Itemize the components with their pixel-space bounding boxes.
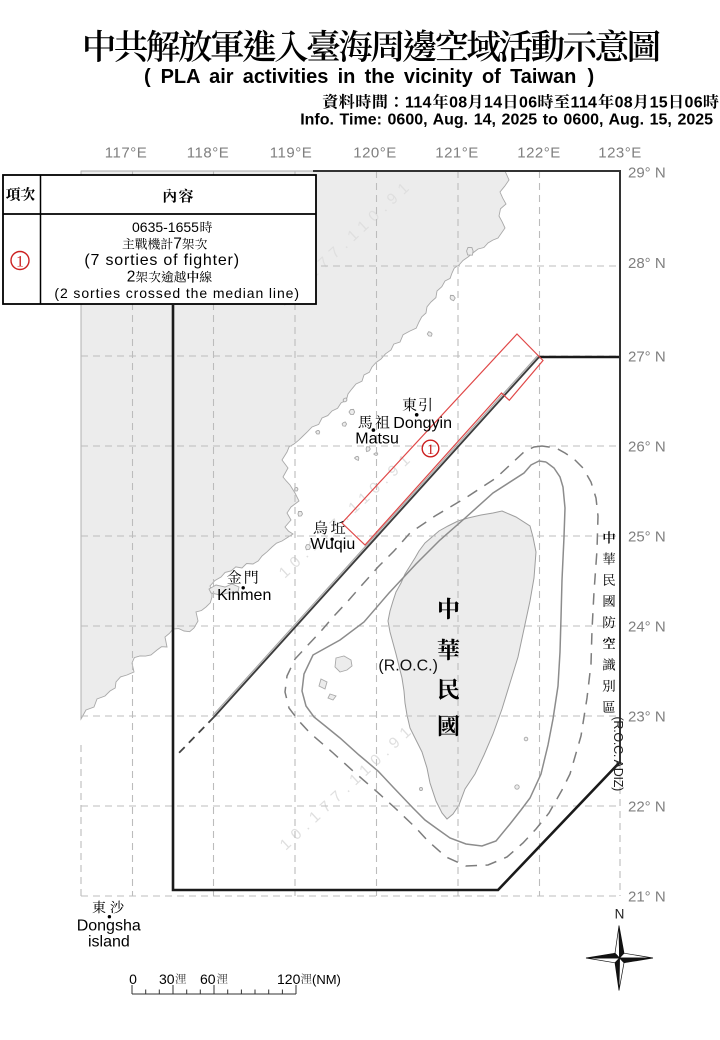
svg-text:123°E: 123°E bbox=[598, 145, 642, 162]
svg-text:120°E: 120°E bbox=[353, 145, 397, 162]
svg-text:23° N: 23° N bbox=[628, 708, 666, 725]
svg-text:PLA air activities in the vici: PLA air activities in the vicinity of Ta… bbox=[161, 66, 577, 88]
svg-text:(2 sorties crossed the median: (2 sorties crossed the median line) bbox=[54, 285, 300, 301]
svg-text:26° N: 26° N bbox=[628, 438, 666, 455]
svg-text:119°E: 119°E bbox=[270, 145, 312, 162]
svg-text:24° N: 24° N bbox=[628, 618, 666, 635]
svg-text:0635-1655: 0635-1655 bbox=[132, 219, 199, 235]
svg-text:7: 7 bbox=[173, 236, 182, 253]
svg-text:121°E: 121°E bbox=[435, 145, 479, 162]
svg-text:1: 1 bbox=[427, 442, 435, 458]
svg-text:28° N: 28° N bbox=[628, 255, 666, 272]
svg-text:27° N: 27° N bbox=[628, 348, 666, 365]
svg-text:1: 1 bbox=[16, 253, 24, 270]
svg-text:Dongsha: Dongsha bbox=[77, 918, 141, 935]
svg-text:30: 30 bbox=[159, 971, 175, 987]
svg-text:2: 2 bbox=[127, 269, 136, 286]
svg-text:08: 08 bbox=[615, 94, 633, 111]
svg-text:29° N: 29° N bbox=[628, 164, 666, 181]
svg-text:06: 06 bbox=[685, 94, 703, 111]
svg-text:21° N: 21° N bbox=[628, 888, 666, 905]
svg-text:(R.O.C.): (R.O.C.) bbox=[378, 658, 438, 675]
svg-text:122°E: 122°E bbox=[517, 145, 561, 162]
svg-text:114: 114 bbox=[405, 94, 432, 111]
svg-text:15: 15 bbox=[650, 94, 668, 111]
svg-text:22° N: 22° N bbox=[628, 798, 666, 815]
svg-text:14: 14 bbox=[484, 94, 502, 111]
svg-text:25° N: 25° N bbox=[628, 528, 666, 545]
svg-text:(7 sorties of fighter): (7 sorties of fighter) bbox=[84, 252, 239, 269]
svg-text:Matsu: Matsu bbox=[355, 430, 399, 447]
svg-text:118°E: 118°E bbox=[187, 145, 229, 162]
svg-text:08: 08 bbox=[449, 94, 467, 111]
svg-text:island: island bbox=[88, 934, 130, 951]
svg-text:0: 0 bbox=[129, 971, 137, 987]
svg-text:Info. Time: 0600, Aug. 14, 202: Info. Time: 0600, Aug. 14, 2025 to 0600,… bbox=[300, 111, 713, 128]
svg-text:120: 120 bbox=[277, 971, 301, 987]
svg-text:60: 60 bbox=[200, 971, 216, 987]
svg-text:): ) bbox=[588, 66, 595, 88]
svg-text:06: 06 bbox=[519, 94, 537, 111]
svg-text:(: ( bbox=[144, 66, 151, 88]
svg-text:Dongyin: Dongyin bbox=[393, 415, 452, 432]
svg-text:117°E: 117°E bbox=[105, 145, 147, 162]
svg-text:114: 114 bbox=[571, 94, 598, 111]
svg-text:(NM): (NM) bbox=[312, 972, 341, 987]
svg-text:Kinmen: Kinmen bbox=[217, 587, 271, 604]
svg-text:(R.O.C. ADIZ): (R.O.C. ADIZ) bbox=[611, 717, 625, 792]
svg-text:N: N bbox=[615, 907, 625, 922]
